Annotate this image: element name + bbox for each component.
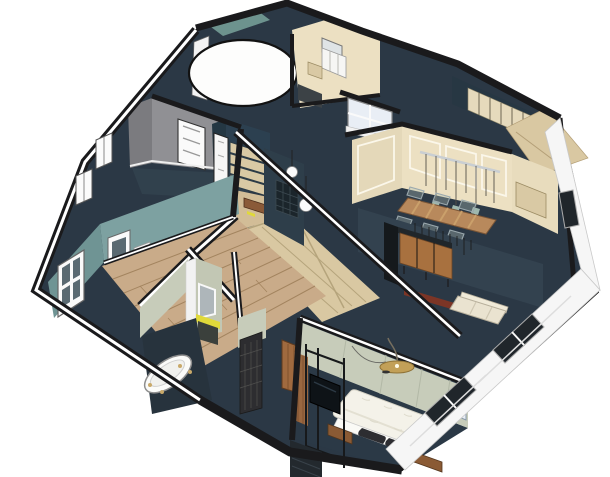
gray-room-door — [178, 119, 205, 170]
lamp-bulb — [395, 364, 399, 368]
bathroom-mirror — [199, 284, 215, 318]
circular-room-top — [189, 40, 297, 106]
screenshot-root — [0, 0, 610, 477]
lamp-base — [382, 371, 390, 374]
floorplan-canvas — [0, 0, 610, 477]
